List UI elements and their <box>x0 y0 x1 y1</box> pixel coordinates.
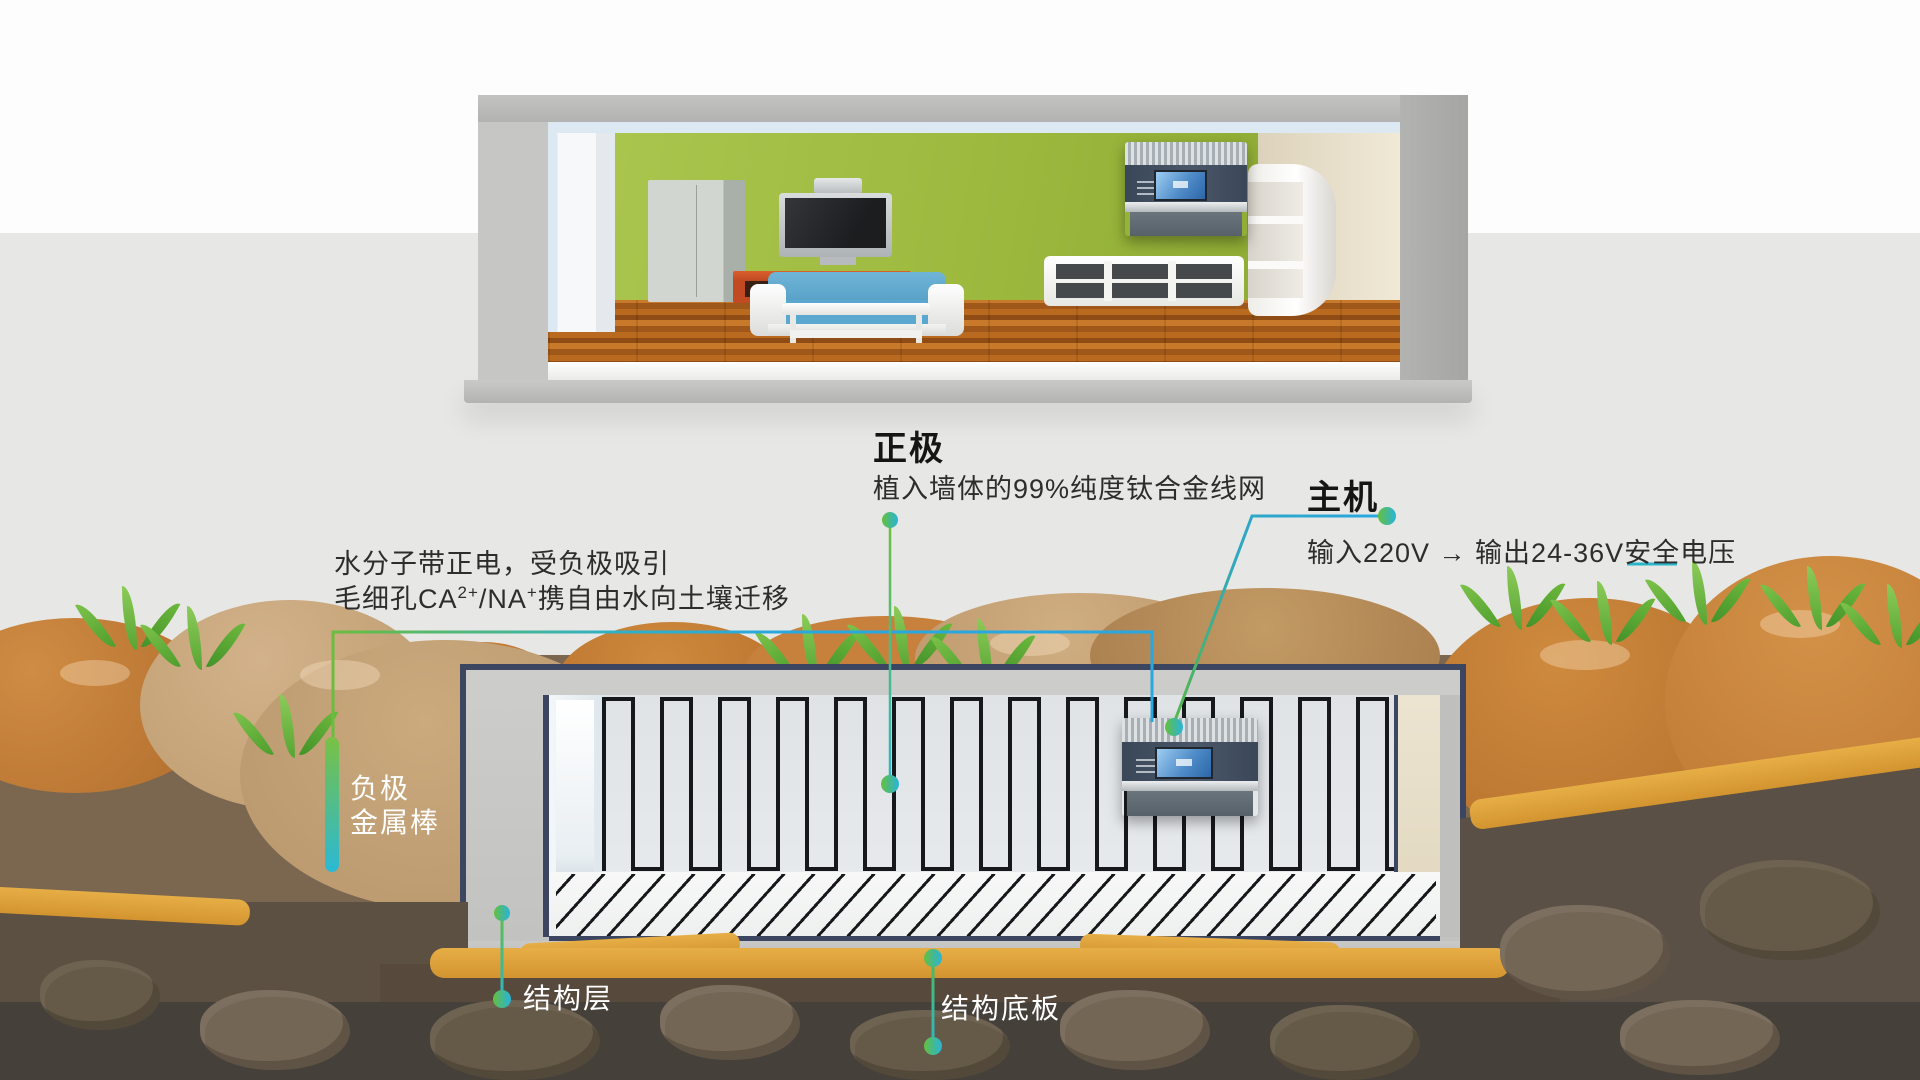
floor-front-band <box>548 362 1400 380</box>
device-silver-band <box>1125 202 1247 211</box>
coffee-table-leg <box>916 313 922 343</box>
grass-tuft <box>1855 578 1920 648</box>
host-title: 主机 <box>1307 470 1379 519</box>
scene: 正极 植入墙体的99%纯度钛合金线网 主机 输入220V → 输出24-36V安… <box>0 0 1920 1080</box>
upper-right-face <box>1400 95 1468 380</box>
rock <box>40 960 160 1030</box>
upper-base-slab <box>464 380 1472 403</box>
soil-highlight <box>60 660 130 686</box>
coffee-table <box>782 303 930 315</box>
upper-roof-band <box>478 95 1468 122</box>
device-top-band <box>1125 142 1247 166</box>
titanium-wire-mesh-wall <box>602 697 1396 871</box>
device-screen <box>1154 170 1207 200</box>
basement-right-face <box>1440 695 1460 937</box>
grass-tuft <box>1475 560 1555 630</box>
coffee-table-leg <box>790 313 796 343</box>
basement-door-recess <box>556 700 594 896</box>
tv-bracket <box>820 257 856 265</box>
rock <box>1620 1000 1780 1075</box>
device-top-band <box>1122 718 1258 743</box>
device-drawer <box>1127 791 1252 816</box>
device-screen <box>1155 747 1213 778</box>
device-silver-band <box>1122 781 1258 791</box>
host-subtitle: 输入220V → 输出24-36V安全电压 <box>1307 531 1736 570</box>
door-recess <box>548 133 615 332</box>
positive-electrode-subtitle: 植入墙体的99%纯度钛合金线网 <box>873 467 1266 506</box>
rock <box>660 985 800 1060</box>
grass-tuft <box>248 688 328 758</box>
water-note-line1: 水分子带正电，受负极吸引 <box>334 542 670 581</box>
grass-tuft <box>155 600 235 670</box>
host-device-basement <box>1122 718 1258 816</box>
structure-layer-label: 结构层 <box>523 982 613 1016</box>
tv-screen <box>785 198 886 248</box>
titanium-wire-mesh-floor <box>556 874 1436 936</box>
media-cabinet <box>1044 256 1244 306</box>
wardrobe <box>648 180 745 302</box>
rock <box>1270 1005 1420 1080</box>
structure-slab-label: 结构底板 <box>941 992 1061 1026</box>
upper-left-face <box>478 122 548 380</box>
gold-ridge <box>430 948 1510 978</box>
rock <box>200 990 350 1070</box>
tv <box>779 193 892 257</box>
grass-tuft <box>1775 560 1855 630</box>
rock <box>1700 860 1880 960</box>
upper-ceiling-edge <box>548 122 1400 133</box>
water-note-line2: 毛细孔CA2+/NA+携自由水向土壤迁移 <box>334 577 790 616</box>
rock <box>1060 990 1210 1070</box>
tv-speaker <box>814 178 862 194</box>
soil-highlight <box>300 660 380 690</box>
negative-electrode-label: 负极 金属棒 <box>350 772 440 840</box>
coffee-table-shelf <box>790 330 922 338</box>
corner-shelf <box>1248 164 1336 316</box>
device-drawer <box>1130 212 1242 236</box>
rock <box>1500 905 1670 1000</box>
grass-tuft <box>1565 575 1645 645</box>
positive-electrode-title: 正极 <box>873 421 945 470</box>
host-device-wall <box>1125 142 1247 236</box>
grass-tuft <box>862 600 942 670</box>
